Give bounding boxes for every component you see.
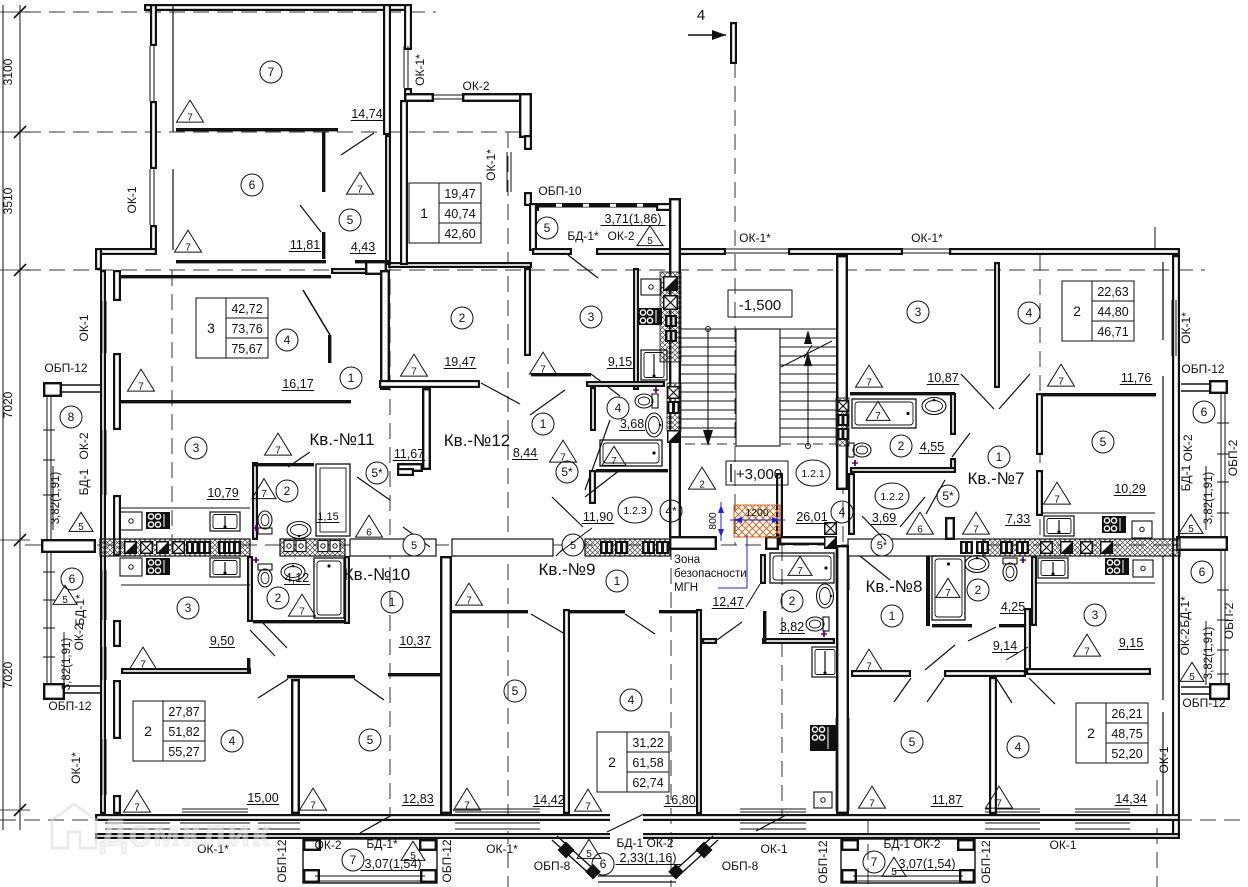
svg-text:ОК-1*: ОК-1*: [486, 842, 518, 856]
svg-text:7: 7: [140, 660, 146, 671]
svg-text:ОК-1*: ОК-1*: [911, 231, 943, 245]
svg-text:Кв.-№11: Кв.-№11: [309, 430, 374, 449]
svg-text:8,44: 8,44: [513, 446, 537, 460]
svg-text:5: 5: [1188, 524, 1194, 535]
svg-text:8: 8: [68, 410, 75, 424]
svg-text:7020: 7020: [1, 661, 15, 688]
svg-text:ОК-1*: ОК-1*: [739, 231, 771, 245]
svg-text:ОК-1*: ОК-1*: [484, 149, 498, 181]
svg-text:12,47: 12,47: [712, 595, 743, 609]
svg-text:7: 7: [275, 446, 281, 457]
svg-text:3: 3: [1092, 608, 1099, 622]
svg-text:3,07(1,54): 3,07(1,54): [365, 857, 422, 871]
svg-text:7: 7: [261, 489, 267, 500]
svg-text:ОК-1: ОК-1: [125, 186, 139, 213]
svg-text:5*: 5*: [877, 540, 888, 552]
svg-text:7: 7: [464, 801, 470, 812]
svg-text:БД-1 ОК-2: БД-1 ОК-2: [884, 837, 941, 851]
svg-text:16,80: 16,80: [664, 793, 695, 807]
svg-text:2: 2: [608, 754, 616, 770]
svg-text:3510: 3510: [1, 187, 15, 214]
svg-text:БД-1 ОК-2: БД-1 ОК-2: [617, 836, 674, 850]
svg-text:ОК-2: ОК-2: [608, 229, 635, 243]
svg-text:44,80: 44,80: [1097, 305, 1128, 319]
svg-text:-1,500: -1,500: [739, 297, 782, 314]
svg-text:14,42: 14,42: [533, 793, 564, 807]
svg-text:ОК-1: ОК-1: [1157, 746, 1171, 773]
svg-text:6: 6: [249, 178, 256, 192]
svg-text:2: 2: [699, 480, 705, 491]
svg-text:5: 5: [1189, 672, 1195, 683]
svg-text:10,87: 10,87: [927, 371, 958, 385]
svg-text:5*: 5*: [942, 489, 954, 503]
svg-text:ОК-2: ОК-2: [1181, 434, 1195, 461]
svg-text:ОБП-12: ОБП-12: [816, 840, 830, 884]
svg-text:5: 5: [647, 236, 653, 247]
svg-text:5: 5: [586, 849, 592, 860]
svg-text:7: 7: [585, 802, 591, 813]
svg-text:5: 5: [891, 867, 897, 878]
svg-text:3,71(1,86): 3,71(1,86): [605, 212, 662, 226]
svg-text:ОК-2: ОК-2: [72, 623, 86, 650]
svg-text:Домклик: Домклик: [100, 813, 271, 855]
svg-text:19,47: 19,47: [444, 187, 475, 201]
svg-text:7: 7: [973, 525, 979, 536]
svg-text:7: 7: [611, 456, 617, 467]
svg-text:ОК-2: ОК-2: [77, 432, 91, 459]
svg-text:52,20: 52,20: [1111, 747, 1142, 761]
svg-text:БД-1*: БД-1*: [567, 229, 599, 243]
svg-text:4*: 4*: [665, 504, 677, 518]
svg-text:1: 1: [389, 595, 396, 609]
svg-text:5: 5: [62, 595, 68, 606]
svg-text:ОБП-12: ОБП-12: [44, 361, 88, 375]
svg-text:10,37: 10,37: [399, 634, 430, 648]
svg-text:безопасности: безопасности: [674, 568, 747, 580]
svg-text:5*: 5*: [371, 466, 383, 480]
svg-text:7: 7: [1058, 377, 1064, 388]
svg-text:2: 2: [1087, 725, 1095, 741]
svg-text:БД-1*: БД-1*: [73, 594, 87, 626]
svg-text:6: 6: [1199, 565, 1206, 579]
svg-text:7: 7: [871, 855, 878, 869]
svg-text:ОБП-12: ОБП-12: [979, 840, 993, 884]
svg-text:7,33: 7,33: [1006, 512, 1030, 526]
svg-text:ОБП-12: ОБП-12: [1181, 362, 1225, 376]
svg-text:7: 7: [945, 588, 951, 599]
svg-text:ОБП-2: ОБП-2: [1222, 602, 1236, 639]
svg-text:5: 5: [909, 735, 916, 749]
svg-text:7: 7: [1084, 647, 1090, 658]
svg-text:7: 7: [875, 411, 881, 422]
svg-text:1,15: 1,15: [317, 511, 338, 523]
svg-text:5: 5: [1100, 435, 1107, 449]
svg-text:Зона: Зона: [674, 554, 701, 566]
svg-text:ОБП-12: ОБП-12: [275, 839, 289, 883]
svg-text:ОК-1*: ОК-1*: [413, 54, 427, 86]
svg-text:2: 2: [975, 583, 982, 597]
svg-text:3: 3: [193, 441, 200, 455]
svg-text:1.2.1: 1.2.1: [801, 468, 825, 480]
svg-text:БД-1*: БД-1*: [366, 837, 398, 851]
svg-text:ОБП-12: ОБП-12: [48, 699, 92, 713]
svg-text:1: 1: [614, 574, 621, 588]
svg-text:7: 7: [268, 65, 275, 79]
svg-text:40,74: 40,74: [444, 207, 475, 221]
svg-text:7: 7: [138, 382, 144, 393]
svg-text:3,82(1,91): 3,82(1,91): [50, 472, 62, 525]
svg-text:7: 7: [185, 243, 191, 254]
svg-text:4: 4: [229, 734, 236, 748]
svg-text:4,43: 4,43: [351, 240, 375, 254]
svg-text:ОК-1: ОК-1: [761, 842, 788, 856]
svg-text:ОБП-2: ОБП-2: [1226, 439, 1240, 476]
svg-text:9,50: 9,50: [210, 634, 234, 648]
svg-text:4: 4: [839, 505, 846, 519]
svg-text:ОБП-8: ОБП-8: [722, 859, 759, 873]
svg-text:3100: 3100: [1, 58, 15, 85]
svg-text:1.2.3: 1.2.3: [623, 505, 647, 517]
svg-text:3: 3: [915, 305, 922, 319]
svg-text:ОБП-12: ОБП-12: [1182, 696, 1226, 710]
svg-text:2: 2: [898, 439, 905, 453]
svg-text:6: 6: [1201, 405, 1208, 419]
svg-text:7: 7: [299, 607, 305, 618]
svg-text:26,01: 26,01: [796, 510, 827, 524]
svg-text:7: 7: [540, 365, 546, 376]
svg-text:61,58: 61,58: [632, 756, 663, 770]
svg-text:12,83: 12,83: [402, 792, 433, 806]
svg-text:3,82(1,91): 3,82(1,91): [1203, 627, 1215, 680]
svg-text:3,69: 3,69: [872, 511, 896, 525]
svg-text:ОК-2: ОК-2: [1178, 628, 1192, 655]
svg-text:БД-1: БД-1: [77, 468, 91, 495]
svg-text:6: 6: [917, 525, 923, 536]
svg-text:7: 7: [134, 803, 140, 814]
svg-text:5: 5: [347, 213, 354, 227]
svg-text:ОК-1: ОК-1: [1050, 838, 1077, 852]
svg-text:6: 6: [69, 572, 76, 586]
svg-text:7: 7: [466, 596, 472, 607]
svg-text:Кв.-№12: Кв.-№12: [444, 431, 510, 450]
svg-text:9,14: 9,14: [993, 639, 1017, 653]
svg-text:3,68: 3,68: [620, 417, 644, 431]
svg-text:22,63: 22,63: [1097, 285, 1128, 299]
svg-text:11,76: 11,76: [1121, 371, 1151, 385]
svg-text:7: 7: [187, 113, 193, 124]
svg-text:16,17: 16,17: [282, 377, 313, 391]
svg-text:1200: 1200: [745, 507, 769, 519]
svg-text:2: 2: [275, 591, 282, 605]
svg-text:2: 2: [459, 311, 466, 325]
svg-text:2: 2: [789, 594, 796, 608]
svg-text:11,81: 11,81: [290, 238, 320, 252]
svg-text:ОК-1*: ОК-1*: [1179, 312, 1193, 344]
svg-text:6: 6: [366, 528, 372, 539]
svg-text:4: 4: [284, 333, 291, 347]
svg-text:Кв.-№8: Кв.-№8: [865, 577, 922, 596]
svg-text:14,74: 14,74: [351, 107, 382, 121]
svg-text:ОК-2: ОК-2: [463, 79, 490, 93]
svg-text:7: 7: [310, 801, 316, 812]
svg-text:5: 5: [367, 733, 374, 747]
svg-text:75,67: 75,67: [231, 342, 262, 356]
svg-text:42,60: 42,60: [444, 227, 475, 241]
svg-text:ОБП-12: ОБП-12: [440, 839, 454, 883]
svg-text:800: 800: [707, 512, 719, 530]
svg-text:2: 2: [284, 484, 291, 498]
svg-text:Кв.-№7: Кв.-№7: [967, 469, 1024, 488]
svg-text:3,07(1,54): 3,07(1,54): [899, 857, 956, 871]
svg-text:46,71: 46,71: [1097, 325, 1128, 339]
svg-text:3: 3: [588, 310, 595, 324]
svg-text:3,82(1,91): 3,82(1,91): [61, 638, 73, 691]
svg-text:5*: 5*: [561, 465, 573, 479]
svg-text:7: 7: [996, 799, 1002, 810]
svg-text:10,29: 10,29: [1114, 482, 1145, 496]
svg-text:5: 5: [544, 221, 551, 235]
svg-text:ОК-2: ОК-2: [315, 838, 342, 852]
svg-text:55,27: 55,27: [168, 745, 199, 759]
svg-text:4,25: 4,25: [1001, 600, 1025, 614]
svg-text:4: 4: [615, 401, 622, 415]
svg-text:11,67: 11,67: [394, 447, 424, 461]
svg-text:27,87: 27,87: [168, 705, 199, 719]
svg-text:БД-1*: БД-1*: [1178, 596, 1192, 628]
svg-text:3: 3: [185, 601, 192, 615]
svg-text:ОБП-10: ОБП-10: [538, 184, 582, 198]
svg-text:ОК-1*: ОК-1*: [69, 752, 83, 784]
svg-text:2: 2: [1073, 303, 1081, 319]
svg-text:7: 7: [797, 566, 803, 577]
svg-text:6: 6: [600, 857, 607, 871]
svg-text:7020: 7020: [1, 391, 15, 418]
svg-text:1.2.2: 1.2.2: [880, 491, 904, 503]
svg-text:4,12: 4,12: [285, 571, 309, 585]
svg-text:11,90: 11,90: [583, 510, 613, 524]
svg-text:БД-1: БД-1: [1179, 464, 1193, 491]
svg-text:1: 1: [996, 450, 1003, 464]
svg-text:4: 4: [1026, 306, 1033, 320]
svg-text:48,75: 48,75: [1111, 727, 1142, 741]
svg-text:4: 4: [628, 693, 635, 707]
svg-text:62,74: 62,74: [632, 776, 663, 790]
svg-text:1: 1: [540, 417, 547, 431]
svg-text:42,72: 42,72: [231, 302, 262, 316]
svg-text:ОБП-8: ОБП-8: [534, 859, 571, 873]
svg-text:7: 7: [350, 853, 357, 867]
svg-text:7: 7: [869, 799, 875, 810]
svg-text:7: 7: [1054, 495, 1060, 506]
svg-text:1: 1: [889, 609, 896, 623]
svg-text:5: 5: [512, 684, 519, 698]
svg-text:31,22: 31,22: [632, 736, 663, 750]
svg-text:+3,000: +3,000: [736, 466, 782, 483]
svg-text:51,82: 51,82: [168, 725, 199, 739]
svg-text:26,21: 26,21: [1111, 707, 1142, 721]
svg-text:4: 4: [1015, 740, 1022, 754]
svg-text:7: 7: [357, 185, 363, 196]
svg-text:3: 3: [207, 320, 215, 336]
svg-text:Кв.-№9: Кв.-№9: [538, 560, 595, 579]
svg-text:5: 5: [411, 540, 417, 552]
svg-text:9,15: 9,15: [1119, 636, 1143, 650]
svg-text:11,87: 11,87: [932, 793, 962, 807]
svg-text:ОК-1: ОК-1: [77, 314, 91, 341]
svg-text:15,00: 15,00: [247, 791, 278, 805]
svg-text:9,15: 9,15: [608, 355, 632, 369]
svg-text:3,82(1,91): 3,82(1,91): [1203, 472, 1215, 525]
svg-text:1: 1: [420, 205, 428, 221]
svg-text:1: 1: [348, 371, 355, 385]
svg-text:10,79: 10,79: [207, 486, 238, 500]
svg-text:14,34: 14,34: [1115, 792, 1146, 806]
svg-text:2,33(1,16): 2,33(1,16): [620, 851, 677, 865]
svg-text:Кв.-№10: Кв.-№10: [344, 565, 410, 584]
svg-text:2: 2: [144, 723, 152, 739]
svg-text:7: 7: [866, 378, 872, 389]
svg-text:19,47: 19,47: [444, 355, 475, 369]
svg-text:73,76: 73,76: [231, 322, 262, 336]
svg-text:МГН: МГН: [674, 582, 698, 594]
svg-text:3,82: 3,82: [780, 620, 804, 634]
svg-text:4,55: 4,55: [920, 440, 944, 454]
svg-text:5: 5: [78, 522, 84, 533]
svg-text:4: 4: [697, 7, 705, 24]
svg-text:7: 7: [411, 367, 417, 378]
